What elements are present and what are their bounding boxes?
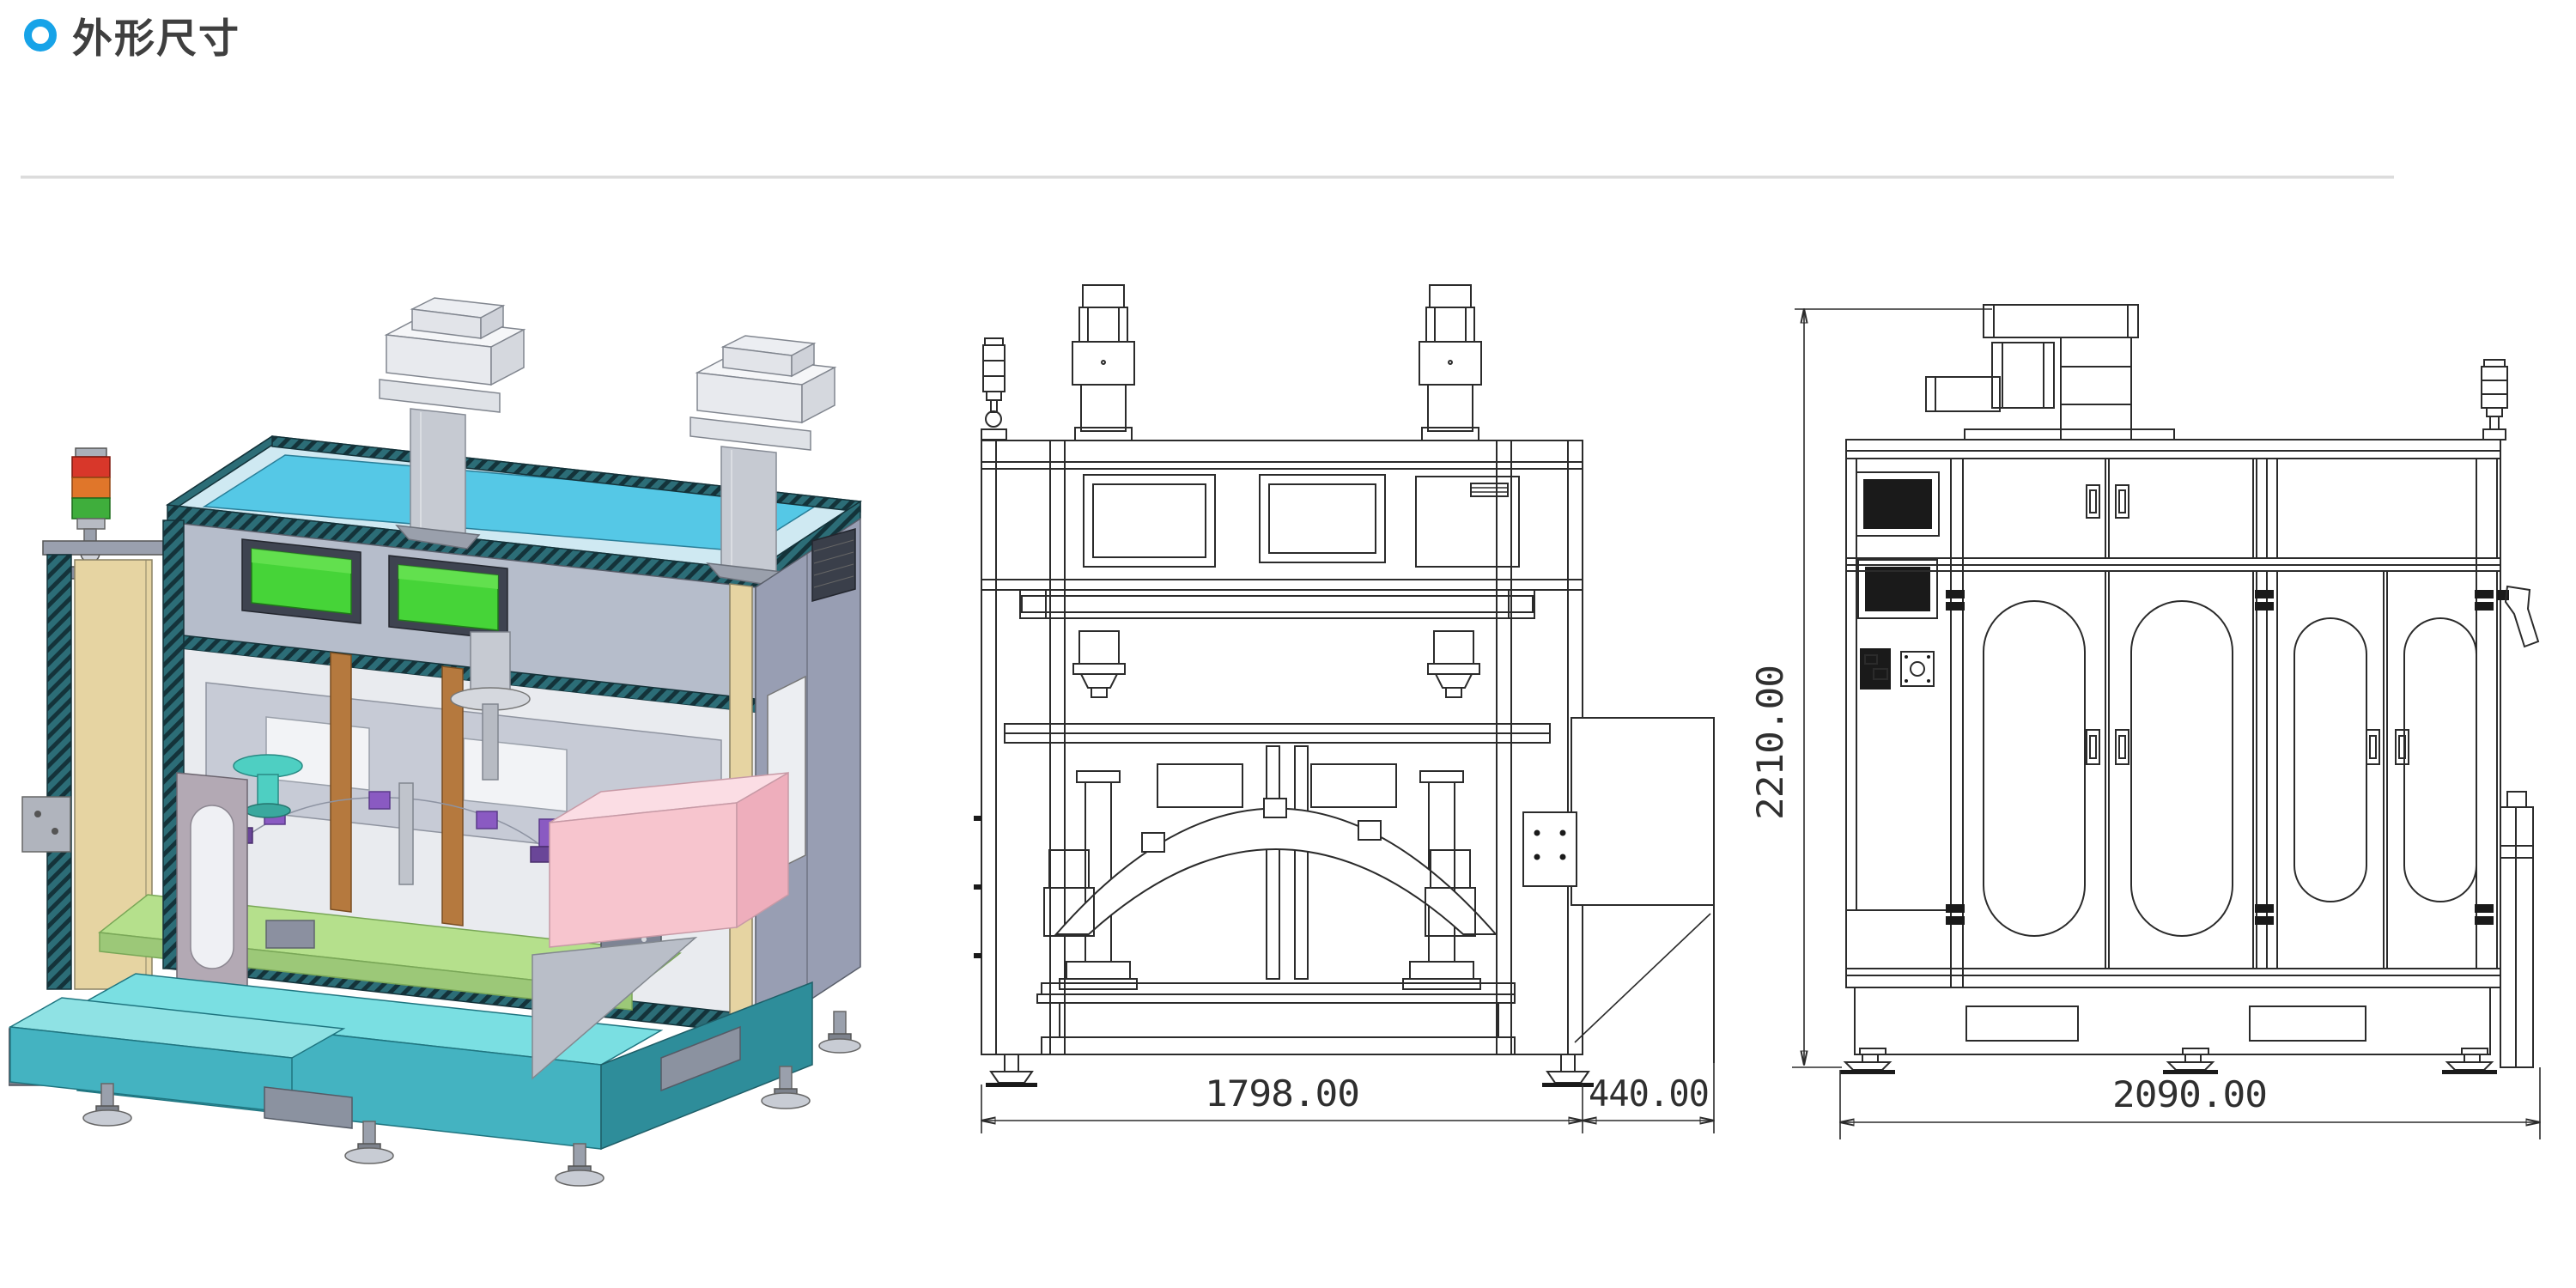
side-press-assembly — [1926, 305, 2174, 440]
front-press-cylinders — [1073, 631, 1479, 697]
machine-3d-render — [9, 249, 876, 1198]
side-cabinet — [1846, 440, 2500, 987]
side-scanner-gun — [2497, 586, 2538, 647]
vent-grid — [812, 529, 855, 601]
left-safety-door — [177, 773, 247, 1010]
front-press-towers — [1072, 285, 1481, 440]
side-base — [1840, 987, 2497, 1074]
front-elevation-drawing: 1798.00 440.00 — [970, 283, 1812, 1142]
side-height-dim: 2210.00 — [1749, 665, 1791, 820]
control-screen-2 — [1865, 567, 1930, 611]
side-width-dim: 2090.00 — [2112, 1073, 2267, 1115]
front-chute-dim: 440.00 — [1589, 1072, 1709, 1115]
front-signal-tower — [981, 338, 1006, 440]
scanner-bracket — [22, 797, 70, 852]
feeder-bowl — [234, 755, 302, 777]
front-work-area — [1005, 724, 1550, 989]
side-chute-column — [2500, 792, 2533, 1067]
front-conveyor-rail — [1020, 590, 1534, 618]
section-title: 外形尺寸 — [72, 5, 240, 64]
front-dimensions: 1798.00 440.00 — [981, 1063, 1714, 1133]
side-signal-tower — [2482, 360, 2507, 440]
hmi-screen-right — [389, 556, 507, 640]
section-divider — [21, 175, 2394, 179]
front-frame — [974, 440, 1583, 1054]
side-elevation-drawing: 2210.00 2090.00 — [1743, 288, 2567, 1215]
section-bullet-icon — [24, 19, 57, 52]
hmi-screen-left — [242, 539, 361, 623]
control-screen-1 — [1863, 479, 1932, 529]
front-header-windows — [981, 475, 1583, 590]
signal-tower — [69, 448, 112, 579]
front-width-dim: 1798.00 — [1205, 1072, 1359, 1115]
